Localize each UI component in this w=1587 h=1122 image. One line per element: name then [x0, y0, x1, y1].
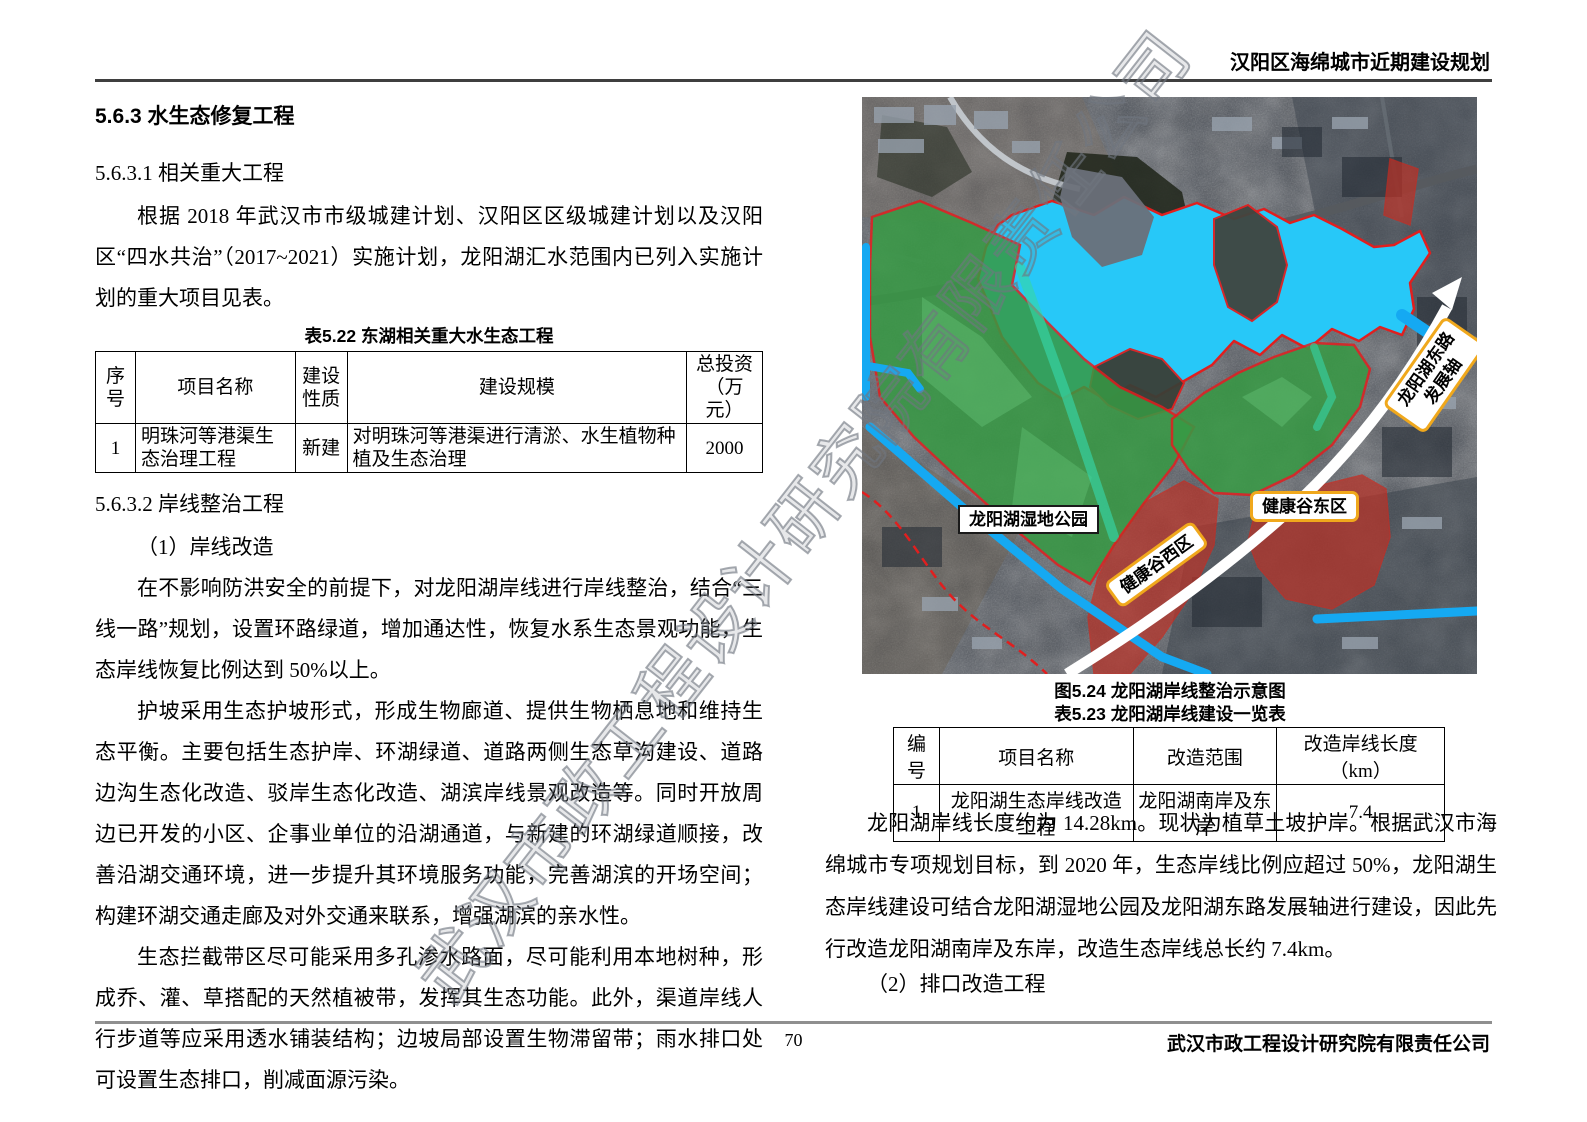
- table-522-header-nature: 建设性质: [295, 352, 347, 424]
- paragraph-3: 护坡采用生态护坡形式，形成生物廊道、提供生物栖息地和维持生态平衡。主要包括生态护…: [95, 691, 763, 937]
- section-heading-563: 5.6.3 水生态修复工程: [95, 100, 763, 134]
- table-522-header-invest: 总投资（万元）: [687, 352, 763, 424]
- table-523-header-name: 项目名称: [939, 728, 1133, 785]
- table-522-header-name: 项目名称: [135, 352, 295, 424]
- sub-item-1: （1）岸线改造: [95, 527, 763, 568]
- table-522-data-row: 1 明珠河等港渠生态治理工程 新建 对明珠河等港渠进行清淤、水生植物种植及生态治…: [96, 424, 763, 473]
- map-label-health-valley-east: 健康谷东区: [1250, 491, 1359, 522]
- paragraph-1: 根据 2018 年武汉市市级城建计划、汉阳区区级城建计划以及汉阳区“四水共治”（…: [95, 196, 763, 319]
- document-header-title: 汉阳区海绵城市近期建设规划: [1230, 46, 1490, 75]
- table-522: 序号 项目名称 建设性质 建设规模 总投资（万元） 1 明珠河等港渠生态治理工程…: [95, 351, 763, 473]
- table-cell-index: 1: [96, 424, 136, 473]
- table-cell-project: 明珠河等港渠生态治理工程: [135, 424, 295, 473]
- table-523-header-no: 编号: [894, 728, 940, 785]
- table-522-header-xuhao: 序号: [96, 352, 136, 424]
- map-svg: [862, 97, 1477, 674]
- table-522-header-scale: 建设规模: [347, 352, 686, 424]
- left-column: 5.6.3 水生态修复工程 5.6.3.1 相关重大工程 根据 2018 年武汉…: [95, 92, 763, 1101]
- table-cell-scale: 对明珠河等港渠进行清淤、水生植物种植及生态治理: [347, 424, 686, 473]
- map-label-wetland-park: 龙阳湖湿地公园: [958, 505, 1099, 534]
- figure-524-caption: 图5.24 龙阳湖岸线整治示意图: [810, 680, 1530, 702]
- satellite-map-figure: 龙阳湖湿地公园 健康谷西区 健康谷东区 龙阳湖东路 发展轴: [862, 97, 1477, 674]
- header-rule: [95, 79, 1492, 82]
- document-page: 汉阳区海绵城市近期建设规划 5.6.3 水生态修复工程 5.6.3.1 相关重大…: [0, 0, 1587, 1122]
- paragraph-5: 龙阳湖岸线长度约为 14.28km。现状为植草土坡护岸。根据武汉市海绵城市专项规…: [825, 802, 1497, 970]
- footer-company: 武汉市政工程设计研究院有限责任公司: [1167, 1029, 1490, 1056]
- table-522-header-row: 序号 项目名称 建设性质 建设规模 总投资（万元）: [96, 352, 763, 424]
- section-heading-5631: 5.6.3.1 相关重大工程: [95, 156, 763, 190]
- table-523-caption: 表5.23 龙阳湖岸线建设一览表: [810, 703, 1530, 725]
- table-523-header-length: 改造岸线长度（km）: [1277, 728, 1445, 785]
- paragraph-2: 在不影响防洪安全的前提下，对龙阳湖岸线进行岸线整治，结合“三线一路”规划，设置环…: [95, 568, 763, 691]
- table-cell-invest: 2000: [687, 424, 763, 473]
- footer-rule: [95, 1021, 1492, 1024]
- paragraph-4: 生态拦截带区尽可能采用多孔渗水路面，尽可能利用本地树种，形成乔、灌、草搭配的天然…: [95, 937, 763, 1101]
- table-cell-nature: 新建: [295, 424, 347, 473]
- table-522-caption: 表5.22 东湖相关重大水生态工程: [95, 325, 763, 347]
- section-heading-5632: 5.6.3.2 岸线整治工程: [95, 487, 763, 521]
- table-523-header-range: 改造范围: [1133, 728, 1277, 785]
- sub-item-2: （2）排口改造工程: [867, 968, 1046, 998]
- table-523-header-row: 编号 项目名称 改造范围 改造岸线长度（km）: [894, 728, 1445, 785]
